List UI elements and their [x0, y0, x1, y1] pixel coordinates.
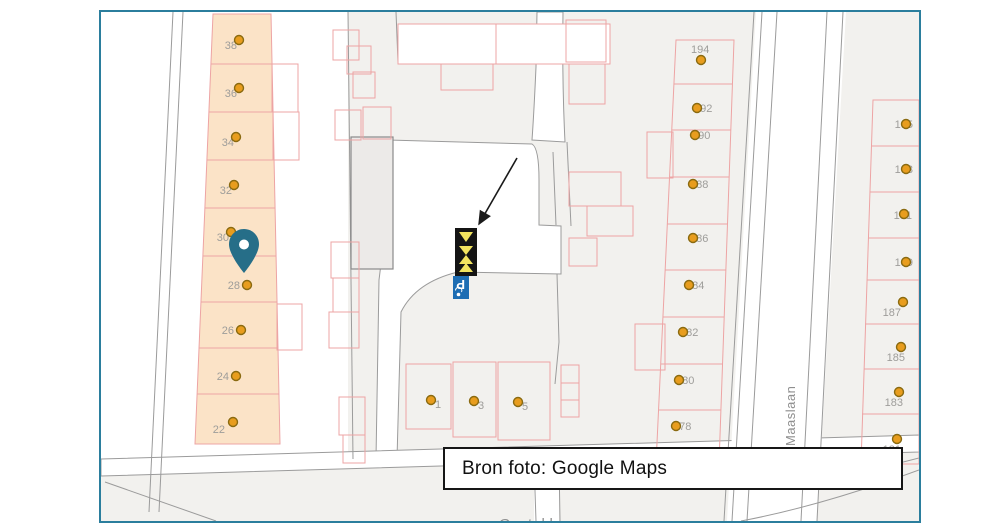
house-number-label: 24: [217, 371, 229, 383]
house-dot: [675, 376, 684, 385]
house-dot: [902, 258, 911, 267]
house-number-label: 22: [213, 424, 225, 436]
parking-marker: [455, 228, 477, 276]
house-dot: [514, 398, 523, 407]
house-dot: [232, 133, 241, 142]
parking-sign-icon: P: [453, 276, 469, 299]
house-dot: [902, 165, 911, 174]
house-dot: [427, 396, 436, 405]
house-number-label: 28: [228, 280, 240, 292]
map-canvas: 38 36 34 32 30 28 26 24 22 194 192 190 1…: [101, 12, 919, 521]
house-dot: [230, 181, 239, 190]
house-dot: [685, 281, 694, 290]
house-dot: [235, 84, 244, 93]
house-dot: [689, 180, 698, 189]
house-dot: [235, 36, 244, 45]
house-dot: [470, 397, 479, 406]
house-dot: [672, 422, 681, 431]
house-dot: [229, 418, 238, 427]
house-dot: [899, 298, 908, 307]
parking-sign-letter: P: [456, 277, 465, 292]
house-dot: [689, 234, 698, 243]
house-dot: [897, 343, 906, 352]
house-dot: [693, 104, 702, 113]
caption-box: Bron foto: Google Maps: [443, 447, 903, 490]
house-number-label: 194: [691, 44, 709, 56]
house-dot: [900, 210, 909, 219]
house-dot: [232, 372, 241, 381]
house-dot: [679, 328, 688, 337]
document-page: 38 36 34 32 30 28 26 24 22 194 192 190 1…: [0, 0, 982, 527]
house-number-label: 185: [887, 352, 905, 364]
house-dot: [691, 131, 700, 140]
house-number-label: 183: [885, 397, 903, 409]
house-dot: [697, 56, 706, 65]
grey-building-outline: [351, 137, 393, 269]
house-dot: [895, 388, 904, 397]
house-dot: [243, 281, 252, 290]
house-dot: [237, 326, 246, 335]
house-dot: [893, 435, 902, 444]
street-label-gastakker: Gastakker: [499, 516, 572, 521]
house-number-label: 187: [883, 307, 901, 319]
house-dot: [902, 120, 911, 129]
street-label-maaslaan: Maaslaan: [783, 386, 798, 446]
caption-text: Bron foto: Google Maps: [462, 458, 667, 480]
house-number-label: 26: [222, 325, 234, 337]
